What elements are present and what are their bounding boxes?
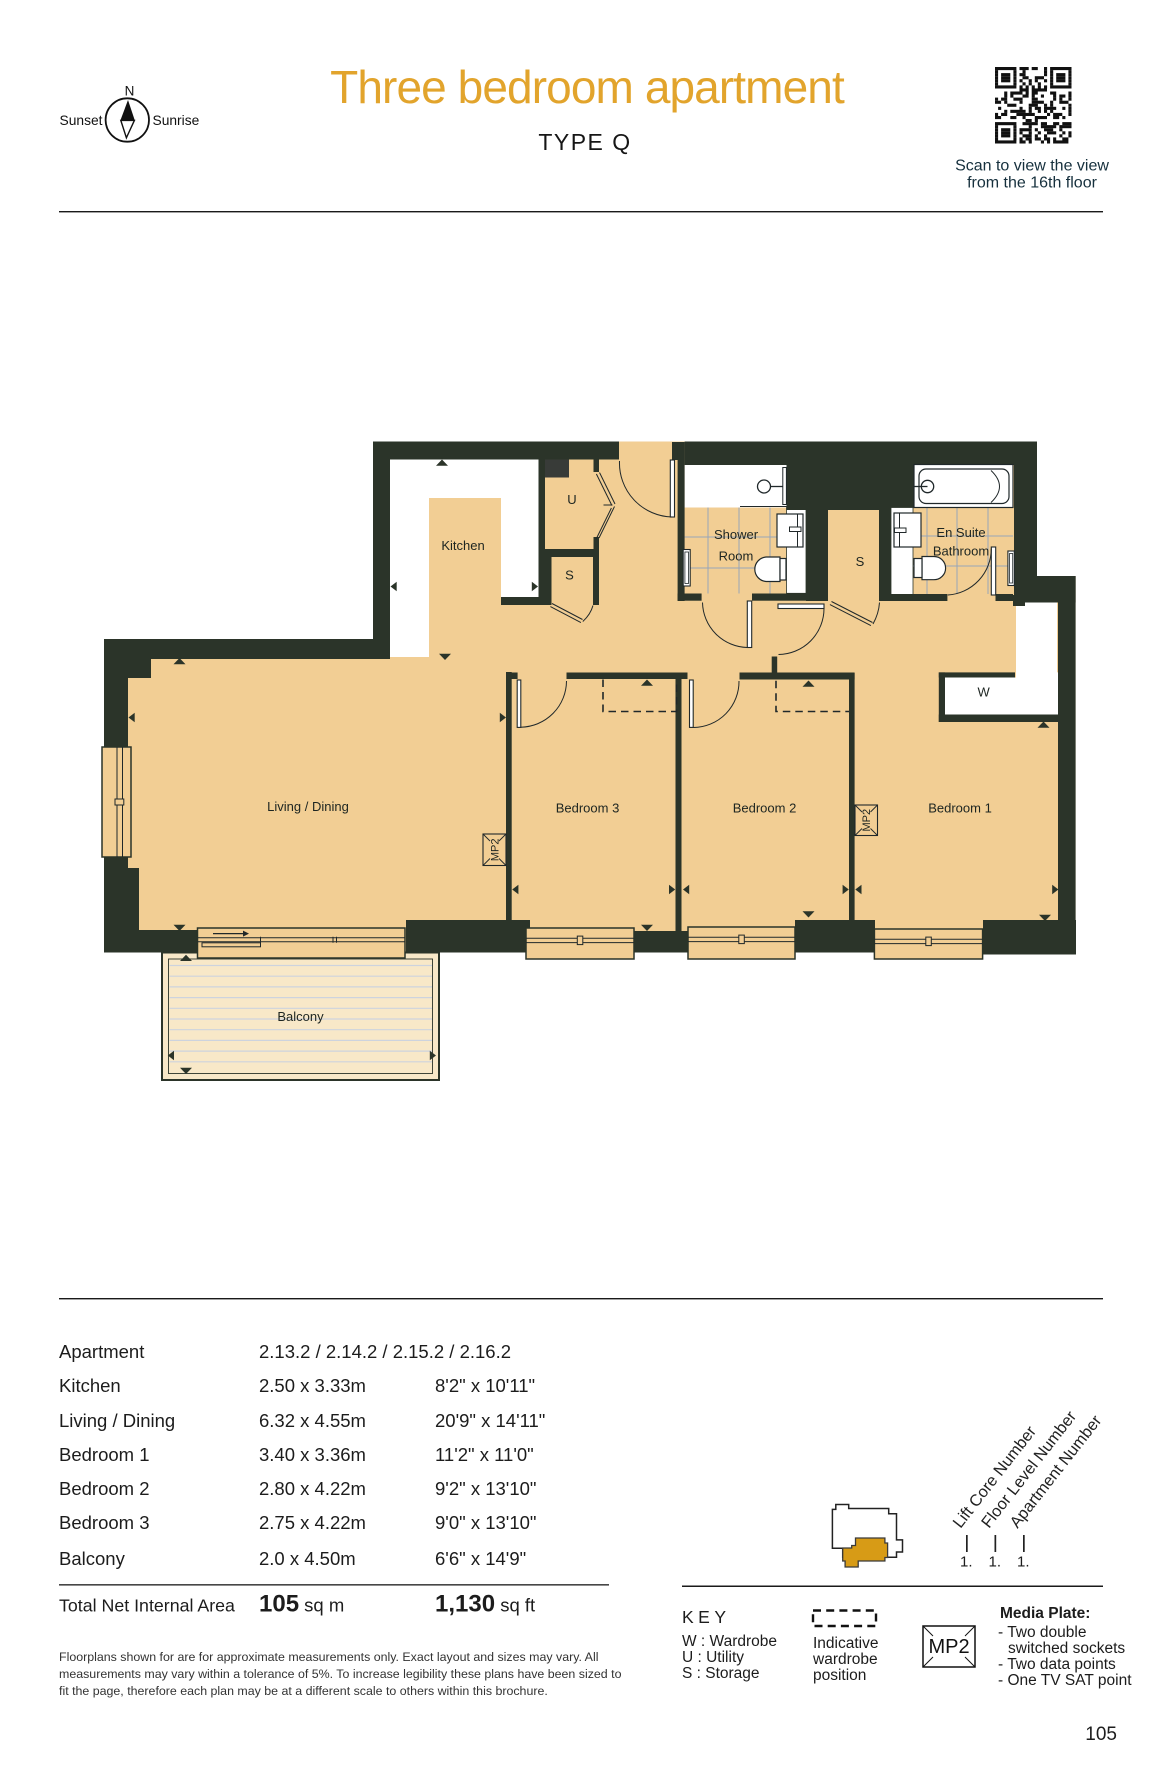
svg-text:Living / Dining: Living / Dining	[267, 799, 349, 814]
svg-text:Balcony: Balcony	[59, 1548, 126, 1569]
svg-text:Bedroom 2: Bedroom 2	[733, 801, 797, 816]
svg-text:- One TV SAT point: - One TV SAT point	[998, 1672, 1132, 1689]
svg-text:Media Plate:: Media Plate:	[1000, 1605, 1090, 1622]
svg-text:MP2: MP2	[861, 809, 873, 832]
svg-text:U : Utility: U : Utility	[682, 1649, 744, 1666]
svg-text:N: N	[125, 84, 135, 99]
svg-text:switched sockets: switched sockets	[1008, 1640, 1125, 1657]
svg-text:2.0 x 4.50m: 2.0 x 4.50m	[259, 1548, 356, 1569]
svg-text:Bedroom 3: Bedroom 3	[59, 1512, 150, 1533]
svg-text:TYPE Q: TYPE Q	[538, 129, 631, 155]
svg-text:6'6" x 14'9": 6'6" x 14'9"	[435, 1548, 526, 1569]
svg-text:measurements may vary within a: measurements may vary within a tolerance…	[59, 1667, 622, 1681]
svg-text:Living / Dining: Living / Dining	[59, 1410, 175, 1431]
svg-text:fit the page, therefore each p: fit the page, therefore each plan may be…	[59, 1684, 548, 1698]
svg-text:S: S	[565, 568, 574, 583]
svg-text:Kitchen: Kitchen	[441, 538, 484, 553]
svg-text:Total Net Internal Area: Total Net Internal Area	[59, 1596, 235, 1616]
svg-text:1.: 1.	[989, 1554, 1002, 1571]
svg-text:20'9" x 14'11": 20'9" x 14'11"	[435, 1410, 545, 1431]
svg-text:Bedroom 2: Bedroom 2	[59, 1478, 150, 1499]
svg-text:Balcony: Balcony	[277, 1009, 324, 1024]
svg-text:Bedroom 3: Bedroom 3	[556, 801, 620, 816]
svg-text:2.80 x 4.22m: 2.80 x 4.22m	[259, 1478, 366, 1499]
svg-text:- Two data points: - Two data points	[998, 1656, 1116, 1673]
svg-text:Room: Room	[719, 549, 754, 564]
svg-text:W: W	[978, 685, 991, 700]
svg-text:2.75 x 4.22m: 2.75 x 4.22m	[259, 1512, 366, 1533]
svg-text:Three bedroom apartment: Three bedroom apartment	[330, 61, 845, 113]
svg-text:1,130 sq ft: 1,130 sq ft	[435, 1591, 535, 1618]
svg-text:Kitchen: Kitchen	[59, 1375, 121, 1396]
svg-text:11'2" x 11'0": 11'2" x 11'0"	[435, 1444, 534, 1465]
svg-text:1.: 1.	[1017, 1554, 1030, 1571]
svg-text:Bathroom: Bathroom	[933, 544, 989, 559]
svg-text:- Two double: - Two double	[998, 1624, 1086, 1641]
svg-text:Sunrise: Sunrise	[153, 113, 200, 128]
svg-text:Bedroom 1: Bedroom 1	[928, 801, 992, 816]
svg-text:8'2" x 10'11": 8'2" x 10'11"	[435, 1375, 535, 1396]
svg-text:En Suite: En Suite	[936, 525, 985, 540]
svg-text:2.50 x 3.33m: 2.50 x 3.33m	[259, 1375, 366, 1396]
svg-text:9'0" x 13'10": 9'0" x 13'10"	[435, 1512, 536, 1533]
svg-text:105 sq m: 105 sq m	[259, 1591, 344, 1618]
svg-text:Sunset: Sunset	[60, 113, 103, 128]
svg-text:Shower: Shower	[714, 527, 759, 542]
svg-text:105: 105	[1085, 1724, 1117, 1745]
svg-text:2.13.2 / 2.14.2 / 2.15.2 / 2.1: 2.13.2 / 2.14.2 / 2.15.2 / 2.16.2	[259, 1341, 511, 1362]
svg-text:Apartment: Apartment	[59, 1341, 144, 1362]
svg-text:6.32 x 4.55m: 6.32 x 4.55m	[259, 1410, 366, 1431]
svg-text:1.: 1.	[960, 1554, 973, 1571]
svg-text:Indicative: Indicative	[813, 1635, 878, 1652]
svg-text:3.40 x 3.36m: 3.40 x 3.36m	[259, 1444, 366, 1465]
svg-text:Bedroom 1: Bedroom 1	[59, 1444, 150, 1465]
svg-text:U: U	[567, 492, 576, 507]
svg-text:MP2: MP2	[928, 1636, 969, 1658]
svg-text:Scan to view the view: Scan to view the view	[955, 158, 1109, 175]
svg-text:from the 16th floor: from the 16th floor	[967, 175, 1098, 192]
svg-text:position: position	[813, 1667, 866, 1684]
svg-text:S: S	[856, 554, 865, 569]
svg-text:9'2" x 13'10": 9'2" x 13'10"	[435, 1478, 536, 1499]
svg-text:wardrobe: wardrobe	[812, 1651, 878, 1668]
svg-text:KEY: KEY	[682, 1607, 731, 1627]
svg-text:W : Wardrobe: W : Wardrobe	[682, 1633, 777, 1650]
svg-text:MP2: MP2	[490, 838, 502, 861]
svg-text:S : Storage: S : Storage	[682, 1665, 760, 1682]
svg-text:Floorplans shown for are for a: Floorplans shown for are for approximate…	[59, 1650, 598, 1664]
